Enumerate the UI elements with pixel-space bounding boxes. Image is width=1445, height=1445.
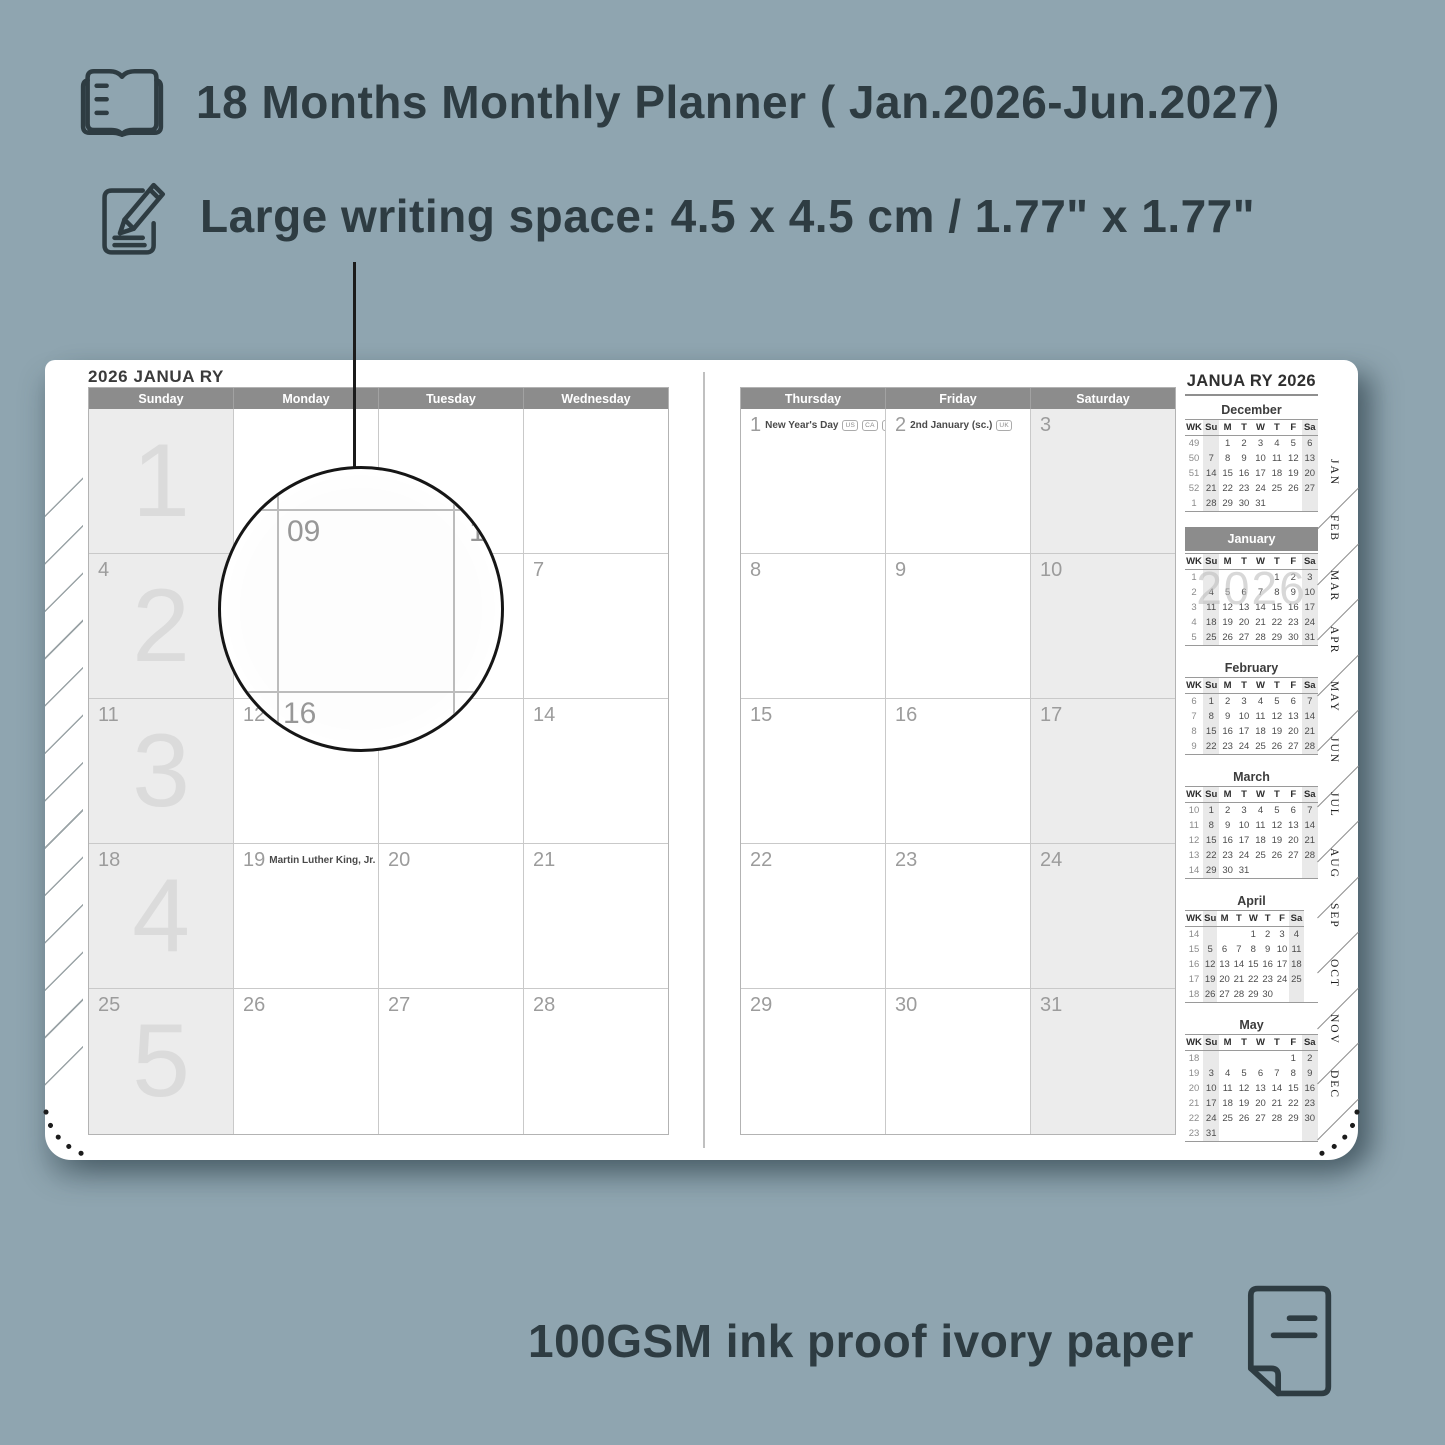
week-row: 293031 xyxy=(741,989,1175,1134)
mini-date: 1 xyxy=(1203,803,1219,819)
mini-week-number: 5 xyxy=(1185,630,1203,646)
month-tab-label: JAN xyxy=(1328,459,1340,486)
day-cell-content: 30 xyxy=(886,989,1030,1016)
mini-date xyxy=(1275,987,1289,1003)
mini-week-number: 14 xyxy=(1185,863,1203,879)
mini-date: 1 xyxy=(1203,694,1219,710)
mini-date: 16 xyxy=(1219,833,1235,848)
mini-dow-cell: WK xyxy=(1185,1035,1203,1051)
mini-date: 21 xyxy=(1232,972,1246,987)
month-tab-may[interactable]: MAY xyxy=(1318,674,1358,729)
date-number: 19 xyxy=(243,849,265,871)
mini-date xyxy=(1252,570,1268,586)
month-tab-aug[interactable]: AUG xyxy=(1318,841,1358,896)
writing-space-magnifier: 09 10 16 xyxy=(218,466,504,752)
mini-month-title: December xyxy=(1185,403,1318,417)
day-cell-content: 1New Year's DayUSCAUKIE xyxy=(741,409,885,436)
day-cell: 17 xyxy=(1031,699,1175,844)
holiday-label: Martin Luther King, Jr. Day xyxy=(269,855,379,866)
feature-monthly-planner-text: 18 Months Monthly Planner ( Jan.2026-Jun… xyxy=(196,75,1280,129)
month-tab-feb[interactable]: FEB xyxy=(1318,508,1358,563)
mini-dow-cell: WK xyxy=(1185,911,1203,927)
day-cell: 26 xyxy=(234,989,379,1134)
month-tab-jul[interactable]: JUL xyxy=(1318,785,1358,840)
day-cell: 8 xyxy=(741,554,886,699)
mini-week-number: 19 xyxy=(1185,1066,1203,1081)
date-number: 17 xyxy=(1040,704,1062,726)
mini-date: 16 xyxy=(1261,957,1275,972)
mini-date: 8 xyxy=(1219,451,1235,466)
mini-date: 2 xyxy=(1285,570,1301,586)
mini-week-row: 418192021222324 xyxy=(1185,615,1318,630)
mini-week-number: 50 xyxy=(1185,451,1203,466)
day-cell-content: 23 xyxy=(886,844,1030,871)
mini-week-number: 22 xyxy=(1185,1111,1203,1126)
mini-dow-cell: T xyxy=(1236,787,1252,803)
mini-date: 10 xyxy=(1302,585,1318,600)
mini-dow-cell: F xyxy=(1285,554,1301,570)
mini-dow-cell: T xyxy=(1269,554,1285,570)
mini-date: 8 xyxy=(1269,585,1285,600)
mini-date: 22 xyxy=(1219,481,1235,496)
magnified-grid-line xyxy=(453,469,455,749)
day-cell: 3 xyxy=(1031,409,1175,554)
mini-date: 22 xyxy=(1269,615,1285,630)
mini-week-number: 4 xyxy=(1185,615,1203,630)
month-tab-jun[interactable]: JUN xyxy=(1318,730,1358,785)
mini-dow-cell: T xyxy=(1269,678,1285,694)
mini-months: DecemberWKSuMTWTFSa491234565078910111213… xyxy=(1185,403,1318,1142)
day-cell-content: 21 xyxy=(524,844,668,871)
mini-date: 6 xyxy=(1217,942,1231,957)
day-header: Monday xyxy=(234,388,379,409)
mini-date: 29 xyxy=(1246,987,1260,1003)
mini-week-number: 12 xyxy=(1185,833,1203,848)
day-header: Tuesday xyxy=(379,388,524,409)
day-cell: 15 xyxy=(741,699,886,844)
mini-month-table: WKSuMTWTFSa49123456507891011121351141516… xyxy=(1185,419,1318,512)
day-cell-content: 27 xyxy=(379,989,523,1016)
mini-date: 11 xyxy=(1252,818,1268,833)
mini-date: 25 xyxy=(1252,739,1268,755)
mini-date: 8 xyxy=(1246,942,1260,957)
mini-dow-row: WKSuMTWTFSa xyxy=(1185,1035,1318,1051)
mini-date xyxy=(1252,1126,1268,1142)
month-tab-label: AUG xyxy=(1328,848,1340,879)
mini-week-row: 5078910111213 xyxy=(1185,451,1318,466)
date-number: 7 xyxy=(533,559,544,581)
day-cell: 311 xyxy=(89,699,234,844)
mini-week-row: 815161718192021 xyxy=(1185,724,1318,739)
mini-week-number: 20 xyxy=(1185,1081,1203,1096)
day-header: Saturday xyxy=(1031,388,1175,409)
mini-date: 21 xyxy=(1269,1096,1285,1111)
mini-date: 17 xyxy=(1236,833,1252,848)
mini-date: 6 xyxy=(1285,694,1301,710)
date-number: 2 xyxy=(895,414,906,436)
mini-dow-cell: T xyxy=(1236,554,1252,570)
mini-week-number: 15 xyxy=(1185,942,1203,957)
day-cell-content: 15 xyxy=(741,699,885,726)
day-cell: 16 xyxy=(886,699,1031,844)
mini-date: 3 xyxy=(1203,1066,1219,1081)
mini-date: 25 xyxy=(1269,481,1285,496)
day-cell: 28 xyxy=(524,989,668,1134)
mini-date xyxy=(1302,496,1318,512)
mini-date: 17 xyxy=(1236,724,1252,739)
mini-week-number: 3 xyxy=(1185,600,1203,615)
holiday-label: 2nd January (sc.) xyxy=(910,420,992,431)
mini-date xyxy=(1269,496,1285,512)
mini-date: 7 xyxy=(1269,1066,1285,1081)
mini-dow-row: WKSuMTWTFSa xyxy=(1185,787,1318,803)
mini-month-title: May xyxy=(1185,1018,1318,1032)
mini-date: 10 xyxy=(1236,818,1252,833)
day-cell-content: 14 xyxy=(524,699,668,726)
country-badge: UK xyxy=(996,420,1012,431)
mini-date: 24 xyxy=(1203,1111,1219,1126)
date-number: 22 xyxy=(750,849,772,871)
mini-date xyxy=(1285,496,1301,512)
date-number: 14 xyxy=(533,704,555,726)
date-number: 20 xyxy=(388,849,410,871)
mini-date xyxy=(1232,927,1246,943)
mini-week-row: 7891011121314 xyxy=(1185,709,1318,724)
date-number: 10 xyxy=(1040,559,1062,581)
month-tab-oct[interactable]: OCT xyxy=(1318,952,1358,1007)
mini-week-number: 2 xyxy=(1185,585,1203,600)
day-cell xyxy=(524,409,668,554)
mini-date: 14 xyxy=(1302,709,1318,724)
mini-week-row: 525262728293031 xyxy=(1185,630,1318,646)
mini-dow-cell: WK xyxy=(1185,554,1203,570)
mini-date: 28 xyxy=(1302,739,1318,755)
mini-date xyxy=(1217,927,1231,943)
mini-date: 13 xyxy=(1285,709,1301,724)
mini-date: 18 xyxy=(1252,833,1268,848)
mini-date: 28 xyxy=(1302,848,1318,863)
callout-connector-line xyxy=(353,262,356,474)
mini-dow-cell: F xyxy=(1285,678,1301,694)
planner-product-image: 18 Months Monthly Planner ( Jan.2026-Jun… xyxy=(0,0,1445,1445)
mini-date: 10 xyxy=(1275,942,1289,957)
mini-date: 12 xyxy=(1285,451,1301,466)
day-cell: 24 xyxy=(1031,844,1175,989)
mini-date: 17 xyxy=(1302,600,1318,615)
holiday-label: New Year's Day xyxy=(765,420,838,431)
mini-date: 18 xyxy=(1289,957,1303,972)
mini-dow-cell: F xyxy=(1285,1035,1301,1051)
day-cell-content: 18 xyxy=(89,844,233,871)
mini-date: 23 xyxy=(1261,972,1275,987)
mini-date: 2 xyxy=(1261,927,1275,943)
mini-date: 14 xyxy=(1203,466,1219,481)
mini-date: 26 xyxy=(1203,987,1217,1003)
mini-week-number: 13 xyxy=(1185,848,1203,863)
mini-date: 14 xyxy=(1232,957,1246,972)
day-cell: 30 xyxy=(886,989,1031,1134)
month-tab-apr[interactable]: APR xyxy=(1318,619,1358,674)
mini-dow-cell: T xyxy=(1236,678,1252,694)
day-cell-content: 8 xyxy=(741,554,885,581)
mini-date: 12 xyxy=(1236,1081,1252,1096)
mini-date: 25 xyxy=(1219,1111,1235,1126)
mini-calendar-sidebar: JANUA RY 2026 DecemberWKSuMTWTFSa4912345… xyxy=(1185,370,1318,1142)
day-cell-content: 3 xyxy=(1031,409,1175,436)
day-cell: 7 xyxy=(524,554,668,699)
mini-date: 5 xyxy=(1203,942,1217,957)
mini-date xyxy=(1252,1051,1268,1067)
mini-dow-row: WKSuMTWTFSa xyxy=(1185,911,1318,927)
day-header-row: ThursdayFridaySaturday xyxy=(741,388,1175,409)
mini-date: 20 xyxy=(1236,615,1252,630)
mini-date: 27 xyxy=(1236,630,1252,646)
mini-date xyxy=(1219,1126,1235,1142)
mini-date: 1 xyxy=(1285,1051,1301,1067)
date-number: 16 xyxy=(895,704,917,726)
mini-month-december: DecemberWKSuMTWTFSa491234565078910111213… xyxy=(1185,403,1318,512)
mini-dow-cell: W xyxy=(1252,554,1268,570)
week-number-watermark: 1 xyxy=(89,409,233,553)
magnified-grid-line xyxy=(221,509,501,511)
mini-date: 20 xyxy=(1302,466,1318,481)
mini-dow-cell: T xyxy=(1269,420,1285,436)
mini-week-number: 6 xyxy=(1185,694,1203,710)
open-book-icon xyxy=(78,64,166,140)
mini-week-number: 16 xyxy=(1185,957,1203,972)
mini-dow-cell: Su xyxy=(1203,911,1217,927)
mini-week-row: 141234 xyxy=(1185,927,1318,943)
mini-week-row: 182627282930 xyxy=(1185,987,1318,1003)
mini-date: 4 xyxy=(1289,927,1303,943)
mini-date: 23 xyxy=(1236,481,1252,496)
mini-date xyxy=(1203,1051,1219,1067)
mini-date: 21 xyxy=(1252,615,1268,630)
date-number: 21 xyxy=(533,849,555,871)
month-tab-jan[interactable]: JAN xyxy=(1318,452,1358,507)
mini-date: 19 xyxy=(1203,972,1217,987)
mini-date: 7 xyxy=(1252,585,1268,600)
day-cell-content: 26 xyxy=(234,989,378,1016)
mini-dow-row: WKSuMTWTFSa xyxy=(1185,420,1318,436)
mini-month-january: JanuaryWKSuMTWTFSa1123245678910311121314… xyxy=(1185,527,1318,646)
mini-date: 27 xyxy=(1285,739,1301,755)
date-number: 11 xyxy=(98,704,119,726)
mini-date xyxy=(1236,570,1252,586)
mini-date: 11 xyxy=(1252,709,1268,724)
day-cell: 22 xyxy=(741,844,886,989)
mini-date: 17 xyxy=(1203,1096,1219,1111)
month-tab-sep[interactable]: SEP xyxy=(1318,896,1358,951)
mini-date: 5 xyxy=(1219,585,1235,600)
day-cell-content: 22nd January (sc.)UK xyxy=(886,409,1030,436)
week-row: 525262728 xyxy=(89,989,668,1134)
mini-dow-cell: F xyxy=(1275,911,1289,927)
mini-dow-cell: M xyxy=(1219,787,1235,803)
mini-date: 4 xyxy=(1219,1066,1235,1081)
mini-date: 4 xyxy=(1252,803,1268,819)
week-row: 222324 xyxy=(741,844,1175,989)
mini-month-title: January xyxy=(1185,527,1318,551)
mini-month-april: AprilWKSuMTWTFSa141234155678910111612131… xyxy=(1185,894,1318,1003)
day-cell-content: 31 xyxy=(1031,989,1175,1016)
mini-week-row: 245678910 xyxy=(1185,585,1318,600)
mini-date: 6 xyxy=(1302,436,1318,452)
mini-date: 13 xyxy=(1217,957,1231,972)
mini-date: 18 xyxy=(1252,724,1268,739)
mini-date: 24 xyxy=(1275,972,1289,987)
corner-stitch-right xyxy=(1291,1102,1361,1164)
mini-date: 12 xyxy=(1219,600,1235,615)
mini-date: 2 xyxy=(1219,803,1235,819)
day-cell-content xyxy=(234,409,378,414)
mini-dow-cell: Sa xyxy=(1289,911,1303,927)
date-number: 27 xyxy=(388,994,410,1016)
day-cell-content: 25 xyxy=(89,989,233,1016)
mini-date: 15 xyxy=(1269,600,1285,615)
page-edge-hatching xyxy=(45,470,83,1102)
month-tab-label: OCT xyxy=(1328,959,1340,988)
mini-date: 5 xyxy=(1285,436,1301,452)
mini-date: 3 xyxy=(1236,694,1252,710)
month-tab-label: MAR xyxy=(1328,570,1340,602)
day-cell: 27 xyxy=(379,989,524,1134)
day-cell: 20 xyxy=(379,844,524,989)
mini-date: 3 xyxy=(1302,570,1318,586)
mini-date: 23 xyxy=(1285,615,1301,630)
mini-date: 25 xyxy=(1203,630,1219,646)
mini-date xyxy=(1289,987,1303,1003)
mini-date: 5 xyxy=(1236,1066,1252,1081)
date-number: 9 xyxy=(895,559,906,581)
mini-week-row: 49123456 xyxy=(1185,436,1318,452)
mini-dow-cell: W xyxy=(1246,911,1260,927)
mini-dow-row: WKSuMTWTFSa xyxy=(1185,678,1318,694)
mini-date: 27 xyxy=(1285,848,1301,863)
date-number: 1 xyxy=(750,414,761,436)
feature-monthly-planner: 18 Months Monthly Planner ( Jan.2026-Jun… xyxy=(78,64,1280,140)
mini-week-number: 11 xyxy=(1185,818,1203,833)
mini-dow-cell: Su xyxy=(1203,420,1219,436)
mini-date: 4 xyxy=(1269,436,1285,452)
mini-date xyxy=(1302,863,1318,879)
date-number: 18 xyxy=(98,849,120,871)
mini-date: 2 xyxy=(1236,436,1252,452)
mini-dow-cell: Su xyxy=(1203,554,1219,570)
week-row: 1New Year's DayUSCAUKIE22nd January (sc.… xyxy=(741,409,1175,554)
month-tab-mar[interactable]: MAR xyxy=(1318,563,1358,618)
mini-date: 24 xyxy=(1236,848,1252,863)
mini-dow-cell: WK xyxy=(1185,420,1203,436)
day-cell-content: 4 xyxy=(89,554,233,581)
day-cell: 10 xyxy=(1031,554,1175,699)
mini-date: 16 xyxy=(1285,600,1301,615)
month-tab-label: DEC xyxy=(1328,1070,1340,1099)
mini-date: 3 xyxy=(1275,927,1289,943)
mini-date: 26 xyxy=(1285,481,1301,496)
mini-date: 9 xyxy=(1219,709,1235,724)
mini-date: 15 xyxy=(1203,724,1219,739)
month-tab-label: JUN xyxy=(1328,737,1340,764)
mini-dow-cell: Sa xyxy=(1302,678,1318,694)
mini-date: 9 xyxy=(1219,818,1235,833)
mini-date: 23 xyxy=(1219,848,1235,863)
mini-month-table: WKSuMTWTFSa11232456789103111213141516174… xyxy=(1185,553,1318,646)
corner-stitch-left xyxy=(42,1102,112,1164)
mini-date: 9 xyxy=(1261,942,1275,957)
mini-dow-cell: M xyxy=(1219,554,1235,570)
mini-date: 28 xyxy=(1269,1111,1285,1126)
mini-month-title: February xyxy=(1185,661,1318,675)
day-cell-content: 10 xyxy=(1031,554,1175,581)
month-tab-label: MAY xyxy=(1328,681,1340,713)
mini-week-row: 5114151617181920 xyxy=(1185,466,1318,481)
mini-date xyxy=(1203,436,1219,452)
mini-dow-cell: T xyxy=(1269,787,1285,803)
mini-week-number: 51 xyxy=(1185,466,1203,481)
day-cell: 1New Year's DayUSCAUKIE xyxy=(741,409,886,554)
month-tab-nov[interactable]: NOV xyxy=(1318,1007,1358,1062)
month-tab-label: FEB xyxy=(1328,515,1340,542)
magnified-date: 10 xyxy=(469,515,502,549)
month-tab-label: SEP xyxy=(1328,903,1340,929)
mini-week-number: 1 xyxy=(1185,496,1203,512)
mini-month-title: March xyxy=(1185,770,1318,784)
day-header-row: SundayMondayTuesdayWednesday xyxy=(89,388,668,409)
mini-date: 9 xyxy=(1302,1066,1318,1081)
mini-date: 11 xyxy=(1203,600,1219,615)
magnified-grid-line xyxy=(277,469,279,749)
mini-date: 10 xyxy=(1236,709,1252,724)
mini-week-row: 922232425262728 xyxy=(1185,739,1318,755)
mini-date: 22 xyxy=(1246,972,1260,987)
mini-week-number: 49 xyxy=(1185,436,1203,452)
day-cell-content: 7 xyxy=(524,554,668,581)
country-badge: US xyxy=(842,420,858,431)
mini-date: 15 xyxy=(1246,957,1260,972)
day-header: Sunday xyxy=(89,388,234,409)
feature-paper-text: 100GSM ink proof ivory paper xyxy=(528,1314,1194,1368)
mini-date: 14 xyxy=(1302,818,1318,833)
day-cell: 418 xyxy=(89,844,234,989)
mini-date: 7 xyxy=(1302,803,1318,819)
mini-date: 21 xyxy=(1302,724,1318,739)
mini-date: 29 xyxy=(1269,630,1285,646)
day-cell: 29 xyxy=(741,989,886,1134)
mini-date: 11 xyxy=(1219,1081,1235,1096)
day-header: Wednesday xyxy=(524,388,668,409)
date-number: 26 xyxy=(243,994,265,1016)
day-cell-content: 20 xyxy=(379,844,523,871)
mini-date: 12 xyxy=(1203,957,1217,972)
day-cell-content: 22 xyxy=(741,844,885,871)
mini-week-row: 5221222324252627 xyxy=(1185,481,1318,496)
month-tab-label: NOV xyxy=(1328,1014,1340,1045)
mini-month-table: WKSuMTWTFSa14123415567891011161213141516… xyxy=(1185,910,1318,1003)
mini-date: 19 xyxy=(1285,466,1301,481)
mini-dow-cell: F xyxy=(1285,787,1301,803)
mini-date: 27 xyxy=(1217,987,1231,1003)
mini-date: 17 xyxy=(1275,957,1289,972)
date-number: 30 xyxy=(895,994,917,1016)
date-number: 4 xyxy=(98,559,109,581)
country-badge: CA xyxy=(862,420,878,431)
mini-dow-cell: W xyxy=(1252,420,1268,436)
feature-writing-space-text: Large writing space: 4.5 x 4.5 cm / 1.77… xyxy=(200,189,1255,243)
day-cell: 14 xyxy=(524,699,668,844)
mini-date: 20 xyxy=(1285,833,1301,848)
mini-dow-row: WKSuMTWTFSa xyxy=(1185,554,1318,570)
